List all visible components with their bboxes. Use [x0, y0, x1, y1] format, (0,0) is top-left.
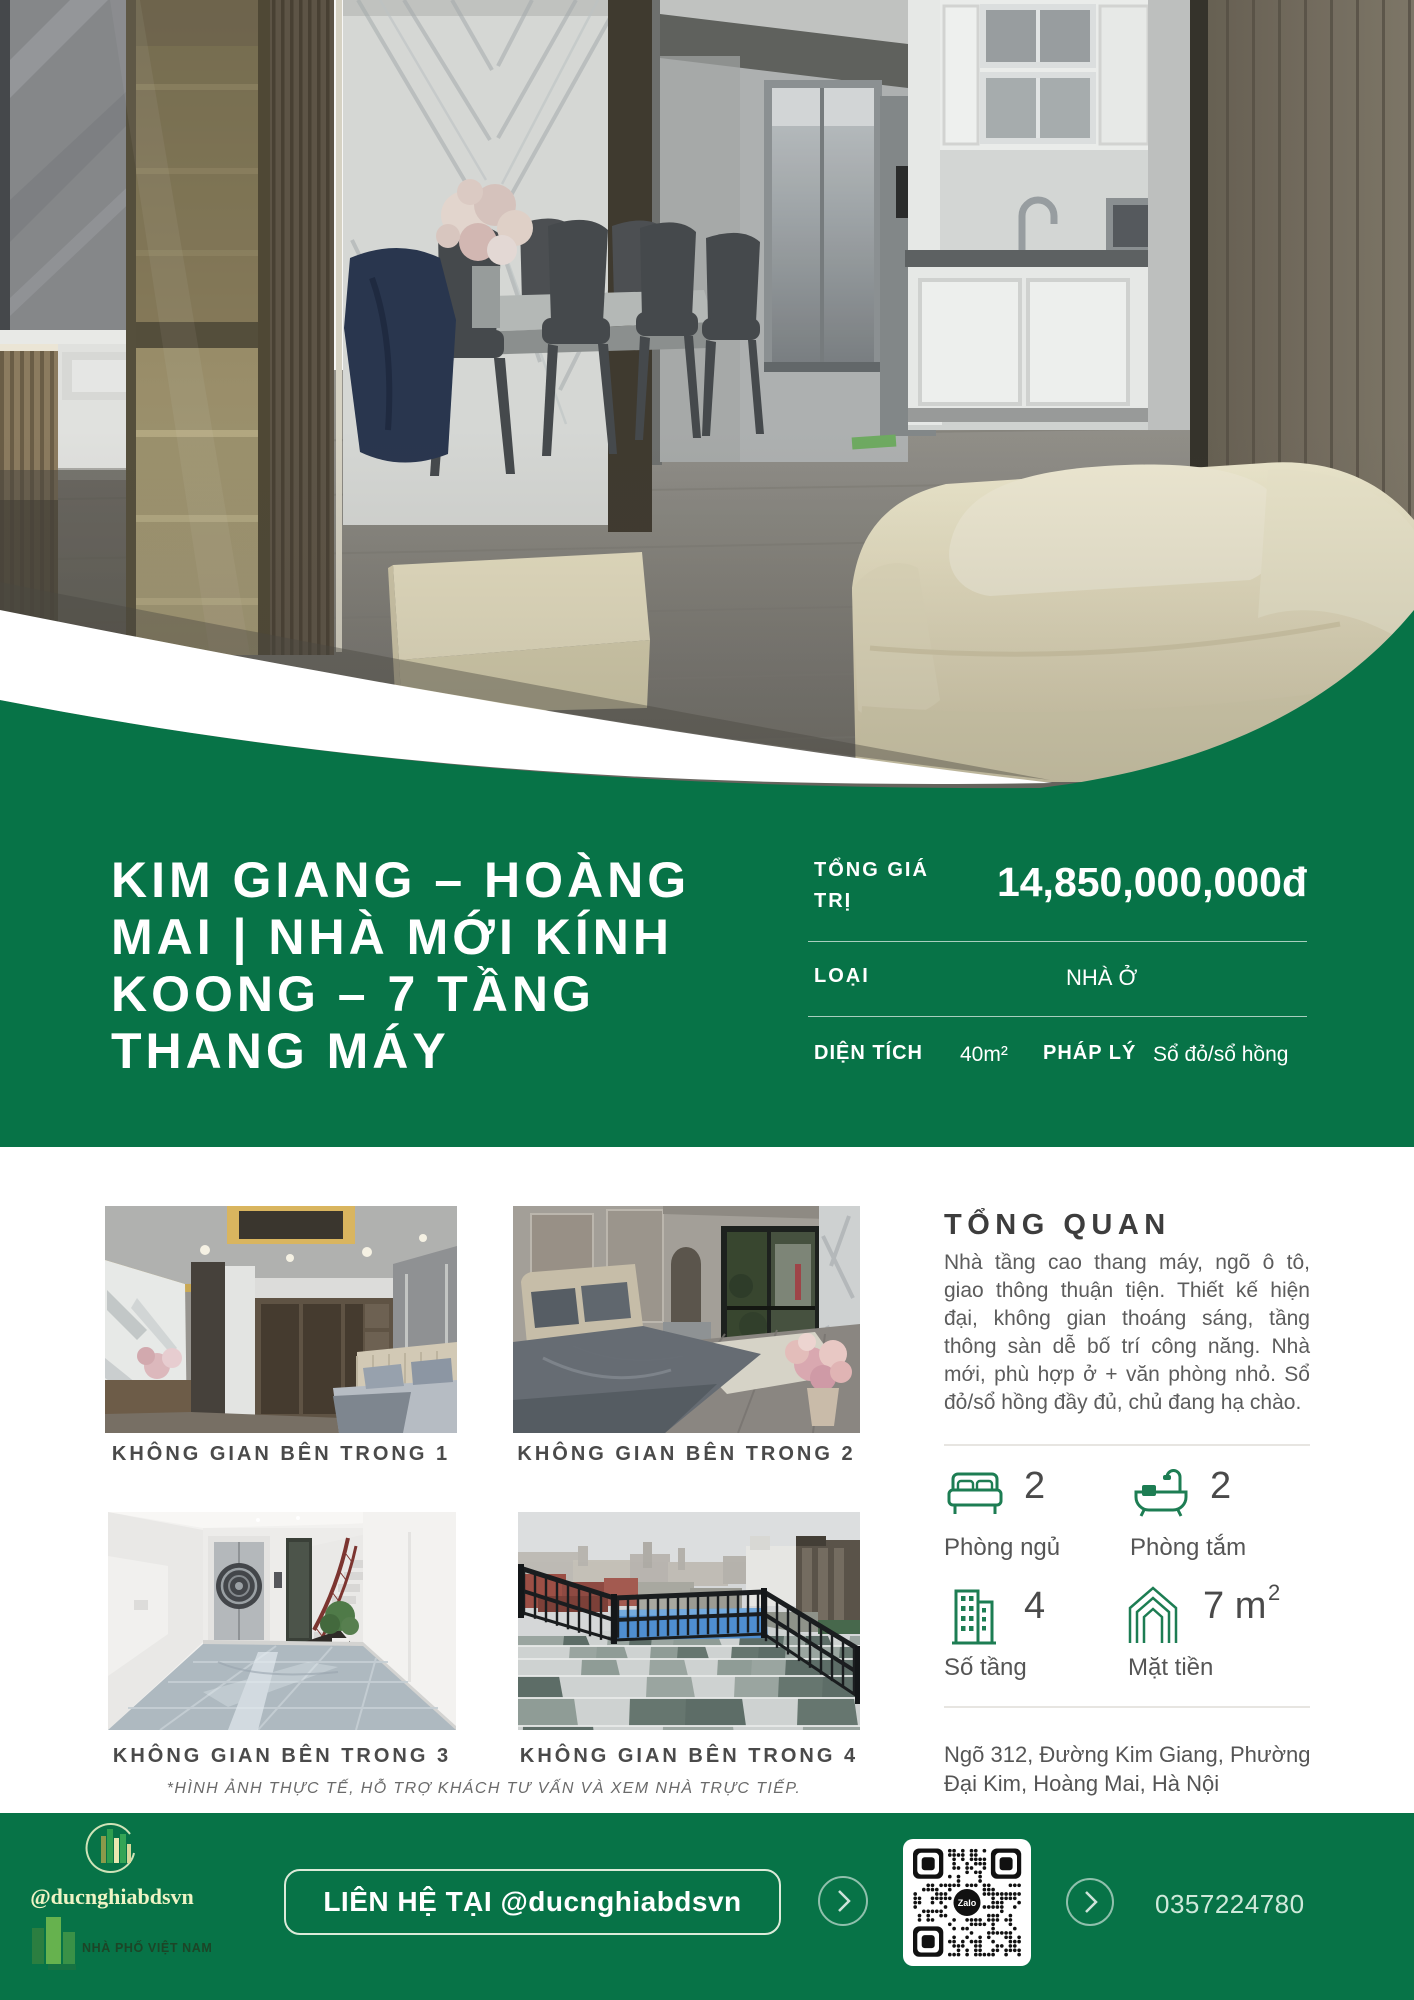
- svg-text:NHÀ PHỐ VIỆT NAM: NHÀ PHỐ VIỆT NAM: [82, 1940, 212, 1955]
- svg-text:Zalo: Zalo: [958, 1898, 977, 1908]
